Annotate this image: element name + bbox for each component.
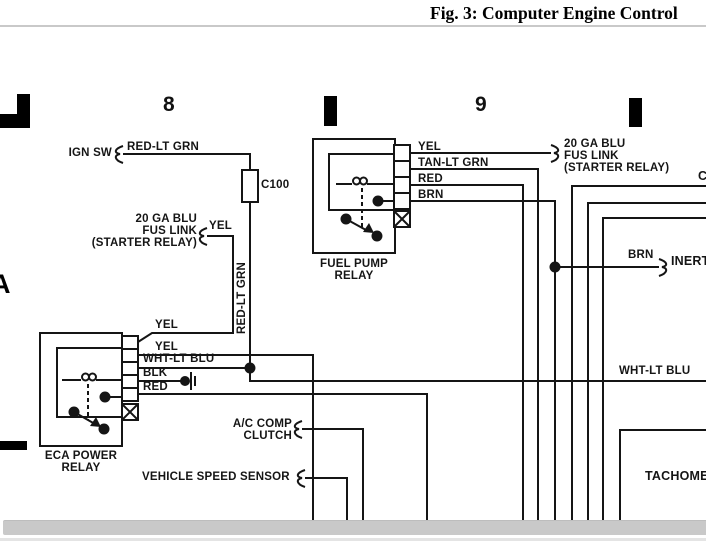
junction-dot [246, 364, 255, 373]
ac-comp-clutch-label: A/C COMP CLUTCH [208, 418, 292, 442]
wire-label-brn-inertia: BRN [628, 249, 654, 261]
fuel-pump-pin-column [394, 145, 410, 227]
grid-column-8: 8 [163, 93, 175, 117]
fus-link-right-label: 20 GA BLU FUS LINK (STARTER RELAY) [564, 138, 669, 174]
right-edge-connector-label: C [698, 170, 706, 182]
wire-yel-fus-link-left [138, 236, 233, 342]
grid-tick-marker [324, 96, 337, 126]
wire-label-red-lt-grn: RED-LT GRN [127, 141, 199, 153]
wire-label-yel-fus-link: YEL [209, 220, 232, 232]
grid-column-9: 9 [475, 93, 487, 117]
vehicle-speed-sensor-label: VEHICLE SPEED SENSOR [142, 471, 290, 483]
wire-label-yel-2: YEL [155, 341, 178, 353]
wire-red-lt-grn [123, 154, 250, 367]
wire-ac-comp-clutch [302, 429, 363, 521]
wire-label-red-lt-grn-vertical: RED-LT GRN [236, 248, 248, 334]
eca-pin-column [122, 336, 138, 420]
ground-icon [181, 372, 195, 390]
wire-label-yel: YEL [418, 141, 441, 153]
wiring-diagram-page: { "figure": { "title": "Fig. 3: Computer… [0, 0, 706, 544]
wire-label-red-eca: RED [143, 381, 168, 393]
grid-tick-marker [629, 98, 642, 127]
connector-c100 [242, 170, 258, 202]
wire-label-blk: BLK [143, 367, 167, 379]
ign-sw-label: IGN SW [58, 147, 112, 159]
eca-power-relay-name: ECA POWER RELAY [36, 450, 126, 474]
junction-dot [551, 263, 560, 272]
inertia-switch-label: INERT [671, 255, 706, 267]
tachometer-label: TACHOMET [645, 470, 706, 482]
wire-label-wht-lt-blu-right: WHT-LT BLU [619, 365, 690, 377]
fuel-pump-relay-symbol [313, 139, 410, 253]
wire-label-red: RED [418, 173, 443, 185]
fuel-pump-output-wires [410, 153, 659, 521]
fuel-pump-relay-name: FUEL PUMP RELAY [311, 258, 397, 282]
corner-bracket-marker [0, 114, 21, 128]
edge-bar-marker [0, 441, 27, 450]
grid-row-a: A [0, 269, 11, 300]
wire-vehicle-speed-sensor [305, 478, 347, 521]
horizontal-scrollbar-thumb[interactable] [3, 520, 706, 535]
wire-label-yel-1: YEL [155, 319, 178, 331]
c100-label: C100 [261, 179, 289, 191]
wire-label-tan-lt-grn: TAN-LT GRN [418, 157, 489, 169]
horizontal-scrollbar-track[interactable] [0, 538, 706, 541]
eca-power-relay-symbol [40, 333, 138, 446]
figure-title: Fig. 3: Computer Engine Control [430, 3, 678, 24]
fus-link-left-label: 20 GA BLU FUS LINK (STARTER RELAY) [88, 213, 197, 249]
wire-label-brn: BRN [418, 189, 444, 201]
title-divider [0, 25, 706, 27]
wire-label-wht-lt-blu: WHT-LT BLU [143, 353, 214, 365]
